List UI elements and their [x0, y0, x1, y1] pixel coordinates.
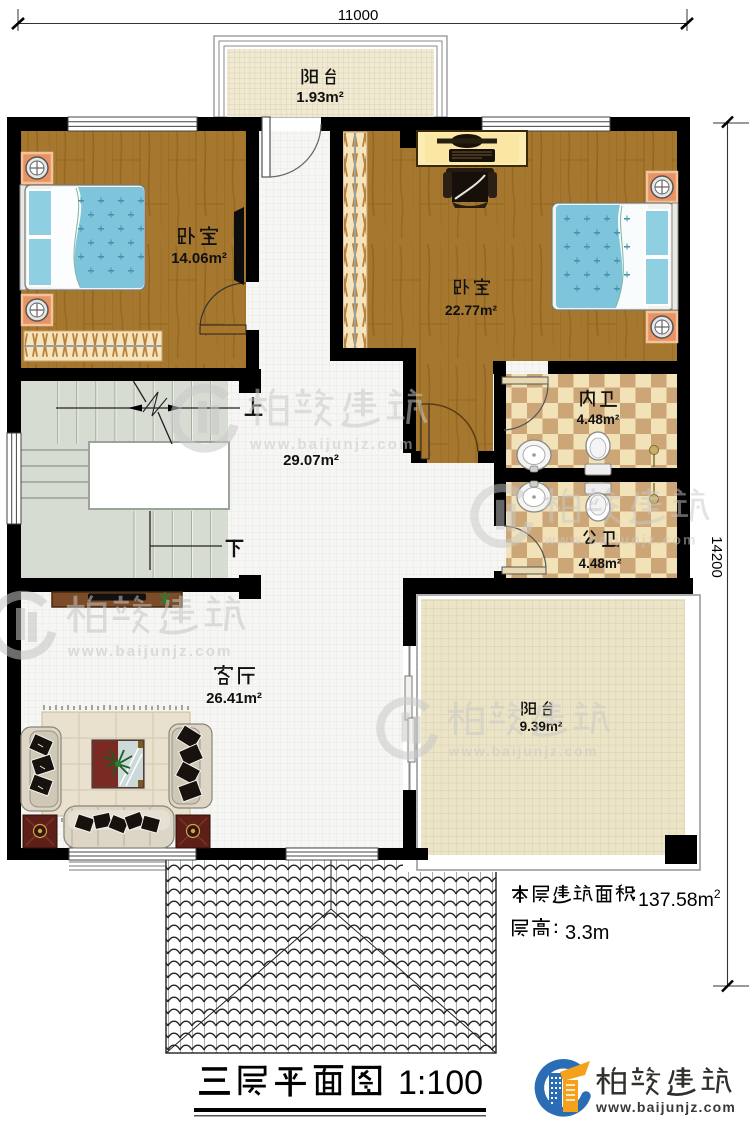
- svg-text:4.48m²: 4.48m²: [577, 412, 620, 427]
- svg-text:www.baijunjz.com: www.baijunjz.com: [595, 1099, 736, 1115]
- svg-text:3.3m: 3.3m: [565, 922, 609, 944]
- svg-text:137.58m2: 137.58m2: [638, 887, 721, 911]
- svg-text:1.93m²: 1.93m²: [296, 89, 344, 106]
- svg-text:14.06m²: 14.06m²: [171, 250, 227, 267]
- svg-text:26.41m²: 26.41m²: [206, 690, 262, 707]
- svg-text:14200: 14200: [708, 536, 725, 578]
- svg-text:29.07m²: 29.07m²: [283, 452, 339, 469]
- svg-text:4.48m²: 4.48m²: [579, 556, 622, 571]
- svg-text:22.77m²: 22.77m²: [445, 302, 497, 318]
- svg-text:11000: 11000: [338, 7, 379, 24]
- svg-text:1:100: 1:100: [398, 1064, 483, 1102]
